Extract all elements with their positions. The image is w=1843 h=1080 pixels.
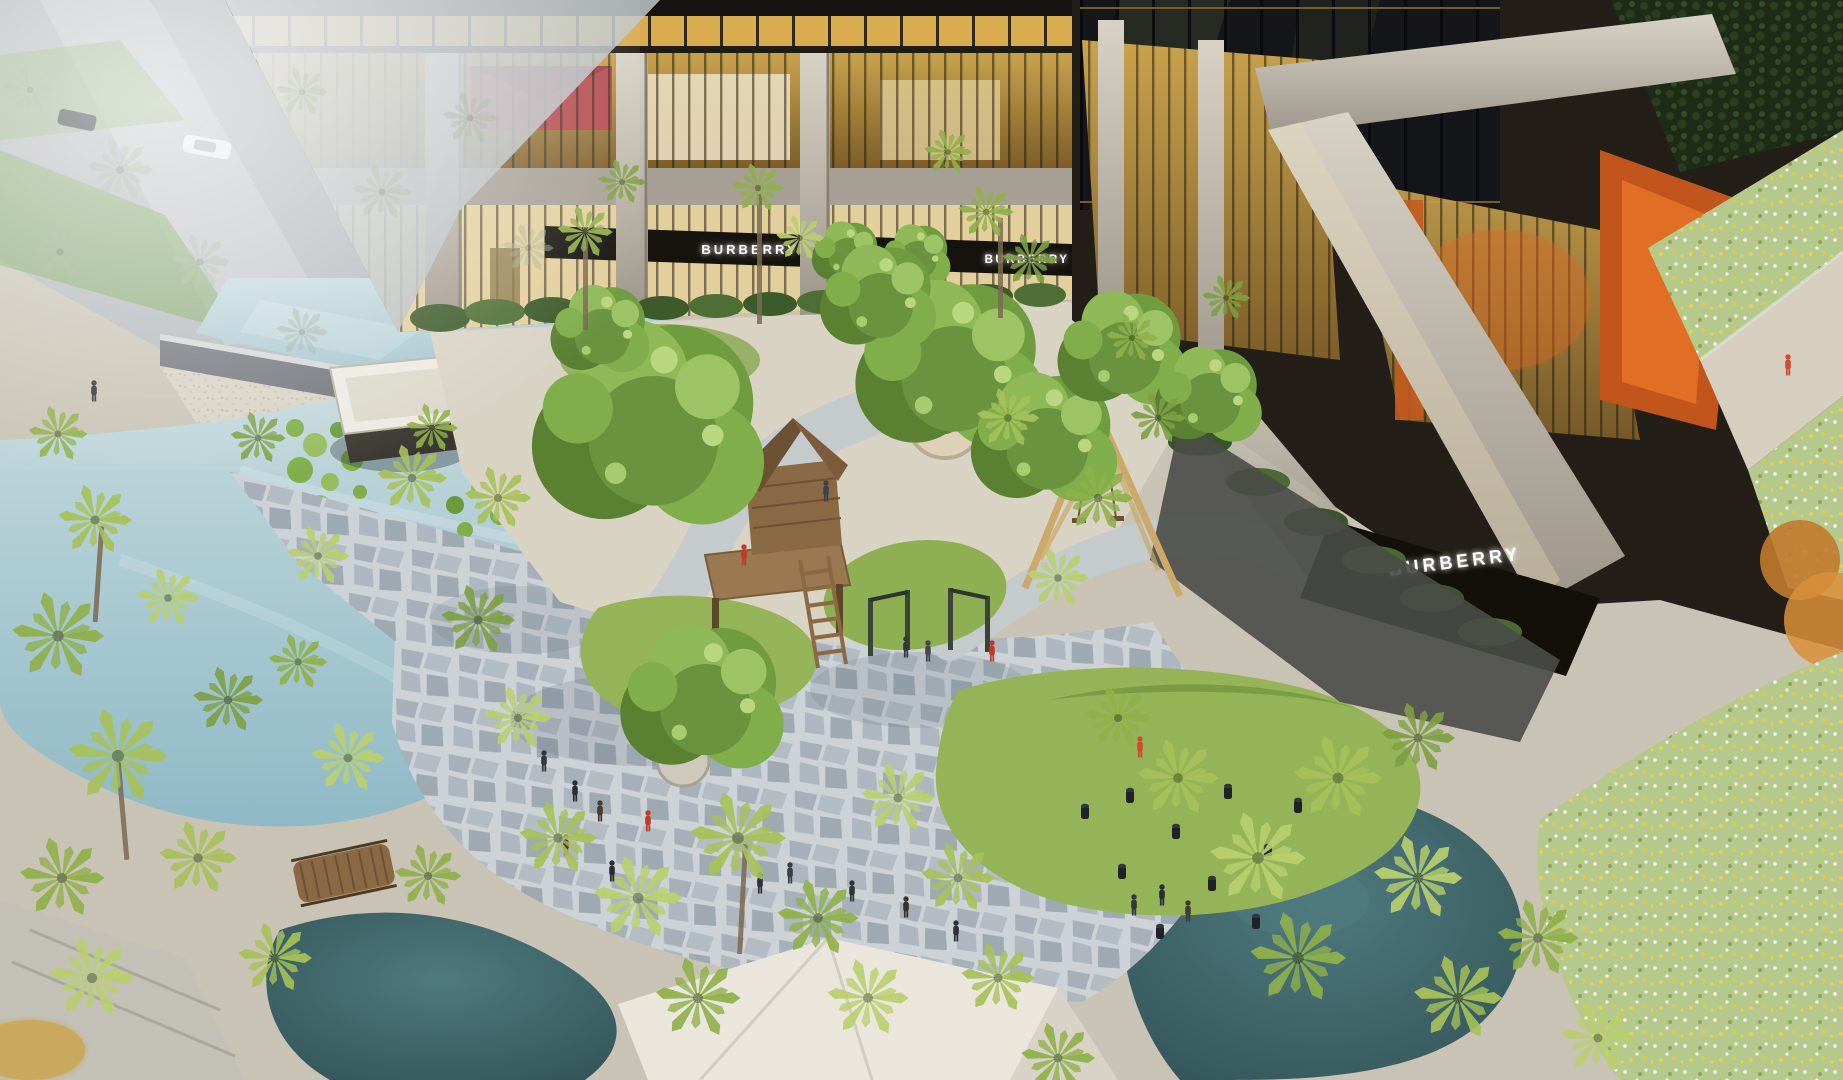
- haze-overlay: [0, 0, 640, 470]
- courtyard-scene: BURBERRY FENDI BURBERRY: [0, 0, 1843, 1080]
- rendering-canvas: BURBERRY FENDI BURBERRY: [0, 0, 1843, 1080]
